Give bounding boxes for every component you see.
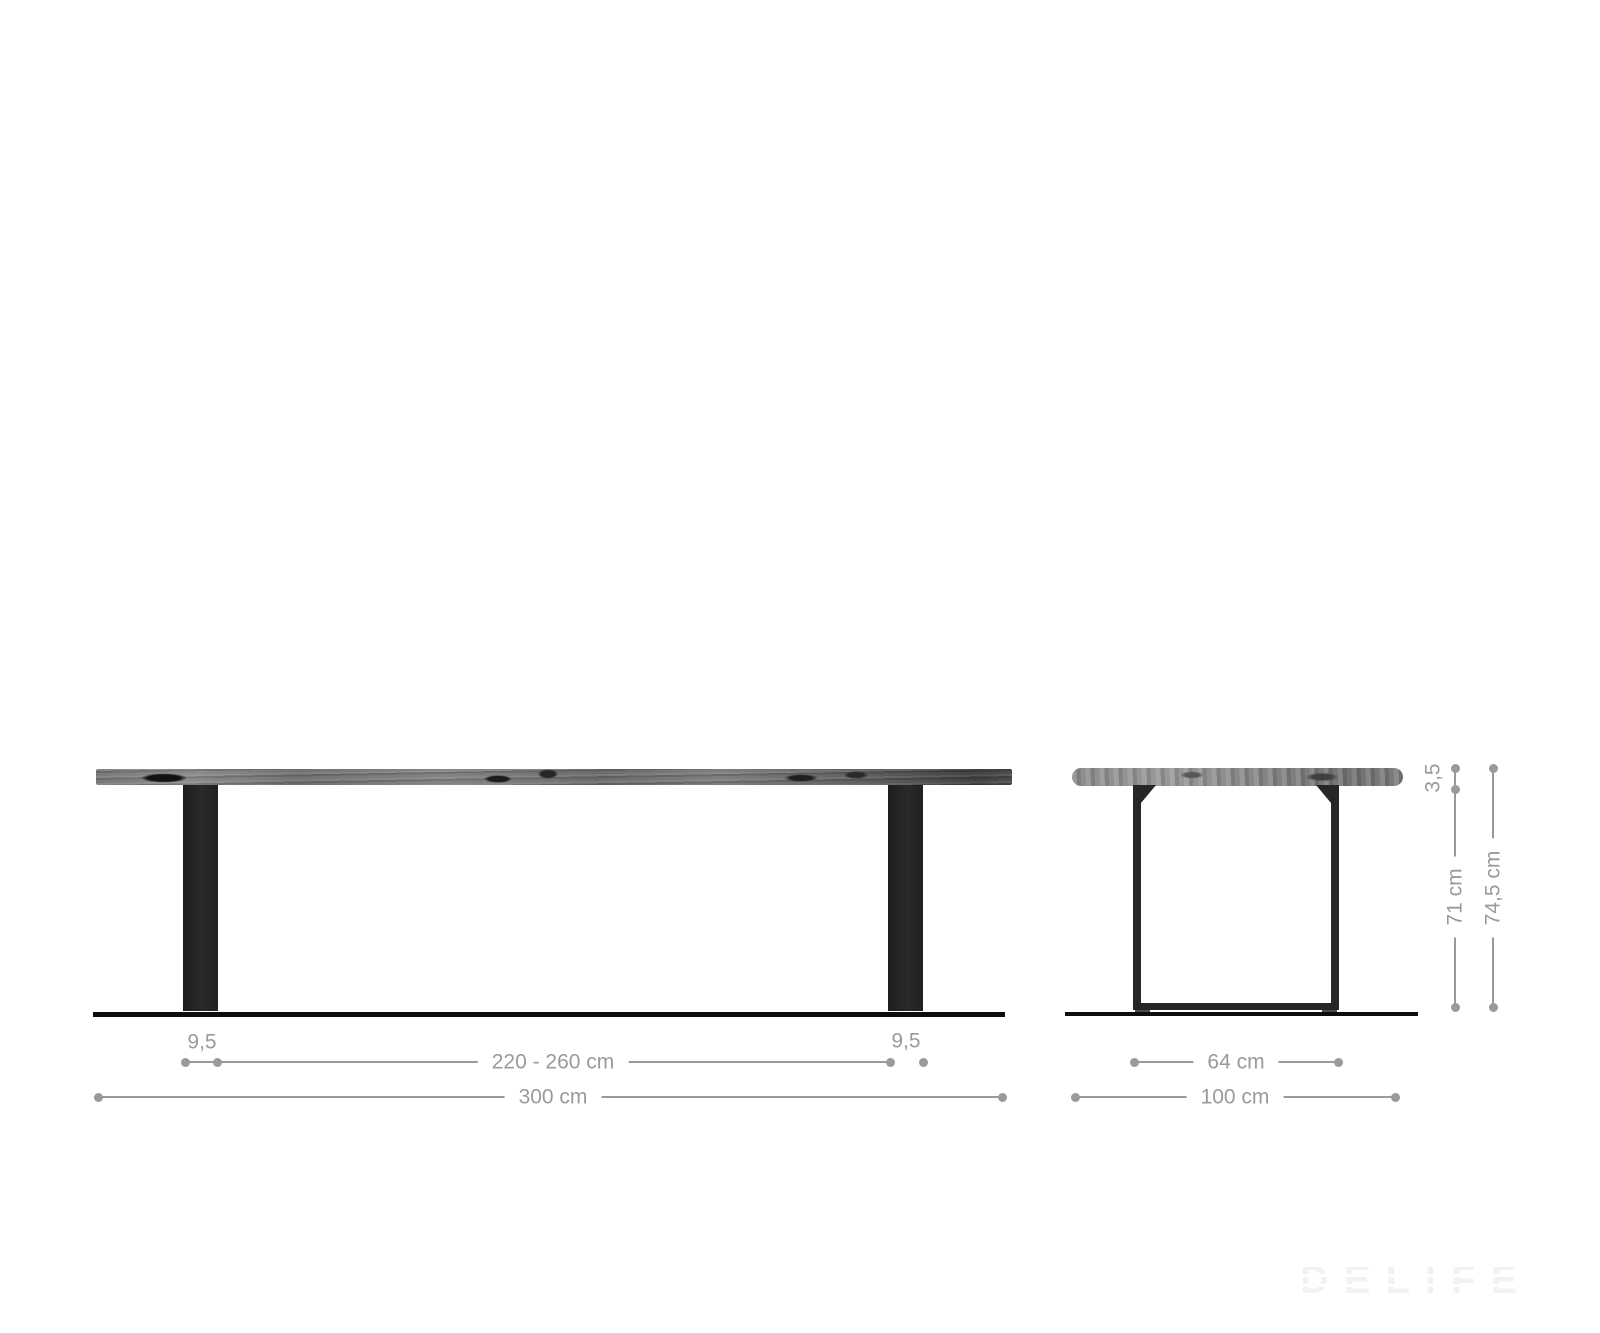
front-leg-right [888,785,923,1011]
dim-endpoint-dot [1391,1093,1400,1102]
side-gusset-left [1141,785,1156,803]
dim-label-total-depth: 100 cm [1187,1084,1284,1111]
side-gusset-right [1316,785,1331,803]
side-skid-bottom [1133,1003,1339,1010]
dim-endpoint-dot [1451,764,1460,773]
dim-endpoint-dot [1489,1003,1498,1012]
dim-endpoint-dot [181,1058,190,1067]
dim-endpoint-dot [1451,1003,1460,1012]
dim-endpoint-dot [1071,1093,1080,1102]
dim-endpoint-dot [94,1093,103,1102]
dim-endpoint-dot [1489,764,1498,773]
dim-label-leg-span: 220 - 260 cm [478,1049,629,1076]
dim-endpoint-dot [1334,1058,1343,1067]
front-floor-line [93,1012,1005,1017]
side-tabletop [1072,768,1403,786]
dim-endpoint-dot [1130,1058,1139,1067]
dim-endpoint-dot [886,1058,895,1067]
dim-label-frame-height: 71 cm [1442,856,1469,937]
delife-logo-stripes [1256,1256,1576,1304]
dim-endpoint-dot [998,1093,1007,1102]
dimension-diagram: 9,5 220 - 260 cm 9,5 300 cm 64 cm 100 cm [0,0,1600,1333]
dim-endpoint-dot [919,1058,928,1067]
dim-endpoint-dot [1451,785,1460,794]
dim-label-total-height: 74,5 cm [1480,839,1507,938]
side-leg-left [1133,785,1141,1010]
front-tabletop [96,769,1012,785]
dim-label-total-width: 300 cm [505,1084,602,1111]
side-floor-line [1065,1012,1418,1016]
side-leg-right [1331,785,1339,1010]
dim-label-leg-width-right: 9,5 [891,1031,920,1052]
front-leg-left [183,785,218,1011]
dim-label-leg-width-left: 9,5 [187,1032,216,1053]
dim-endpoint-dot [213,1058,222,1067]
dim-label-tabletop-thickness: 3,5 [1423,763,1444,792]
dim-label-frame-depth: 64 cm [1193,1049,1278,1076]
